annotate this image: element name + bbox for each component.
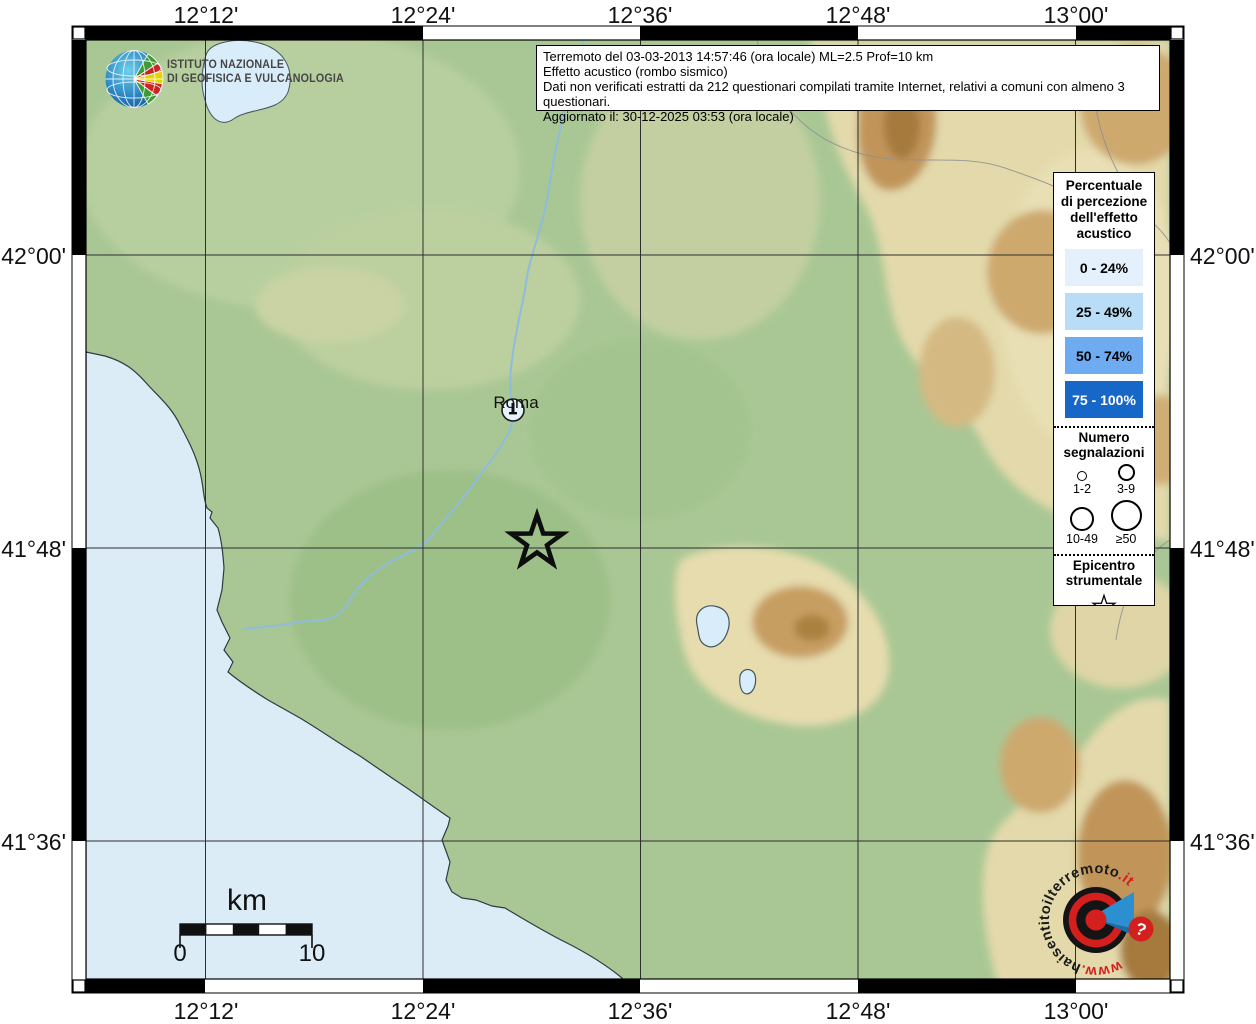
- question-badge: ?: [1129, 917, 1154, 942]
- epicenter-title: Epicentro strumentale: [1054, 558, 1154, 588]
- legend-title: Percentuale di percezione dell'effetto a…: [1054, 178, 1154, 242]
- axis-right-1: 42°00': [1190, 243, 1256, 270]
- signals-row-1: 1-2 3-9: [1054, 464, 1154, 496]
- axis-top-4: 12°48': [822, 2, 894, 29]
- axis-bottom-4: 12°48': [822, 998, 894, 1024]
- axis-bottom-2: 12°24': [387, 998, 459, 1024]
- scale-start-label: 0: [164, 940, 196, 968]
- lake-nemi: [740, 669, 756, 694]
- roma-city-label: Roma: [484, 393, 548, 413]
- axis-right-3: 41°36': [1190, 829, 1256, 856]
- legend-class-0-24: 0 - 24%: [1065, 249, 1143, 286]
- signal-circle-50plus: [1111, 500, 1142, 531]
- legend-divider-2: [1054, 554, 1154, 556]
- scale-unit-label: km: [200, 884, 294, 918]
- signals-row-2: 10-49 ≥50: [1054, 500, 1154, 546]
- ingv-logo-text: ISTITUTO NAZIONALE DI GEOFISICA E VULCAN…: [167, 59, 344, 86]
- event-effect-line: Effetto acustico (rombo sismico): [543, 64, 1153, 79]
- legend-divider-1: [1054, 426, 1154, 428]
- axis-top-2: 12°24': [387, 2, 459, 29]
- scale-end-label: 10: [294, 940, 330, 968]
- axis-right-2: 41°48': [1190, 536, 1256, 563]
- axis-left-3: 41°36': [0, 829, 66, 856]
- axis-top-3: 12°36': [604, 2, 676, 29]
- axis-bottom-1: 12°12': [170, 998, 242, 1024]
- event-updated-line: Aggiornato il: 30-12-2025 03:53 (ora loc…: [543, 109, 1153, 124]
- seismic-map-page: ? www.haisentitoilterremoto.it: [0, 0, 1256, 1024]
- event-info-box: Terremoto del 03-03-2013 14:57:46 (ora l…: [536, 45, 1160, 111]
- event-data-line: Dati non verificati estratti da 212 ques…: [543, 79, 1153, 109]
- signal-circle-1-2: [1077, 471, 1087, 481]
- legend-class-50-74: 50 - 74%: [1065, 337, 1143, 374]
- legend-class-75-100: 75 - 100%: [1065, 381, 1143, 418]
- axis-bottom-3: 12°36': [604, 998, 676, 1024]
- axis-top-5: 13°00': [1040, 2, 1112, 29]
- legend-class-25-49: 25 - 49%: [1065, 293, 1143, 330]
- axis-left-1: 42°00': [0, 243, 66, 270]
- signals-title: Numero segnalazioni: [1054, 430, 1154, 460]
- ingv-globe-icon: [106, 51, 163, 108]
- epicenter-star-icon: [1090, 592, 1118, 606]
- signal-circle-3-9: [1118, 464, 1135, 481]
- event-title-line: Terremoto del 03-03-2013 14:57:46 (ora l…: [543, 49, 1153, 64]
- axis-bottom-5: 13°00': [1040, 998, 1112, 1024]
- axis-left-2: 41°48': [0, 536, 66, 563]
- legend-panel: Percentuale di percezione dell'effetto a…: [1053, 172, 1155, 606]
- axis-top-1: 12°12': [170, 2, 242, 29]
- signal-circle-10-49: [1070, 507, 1094, 531]
